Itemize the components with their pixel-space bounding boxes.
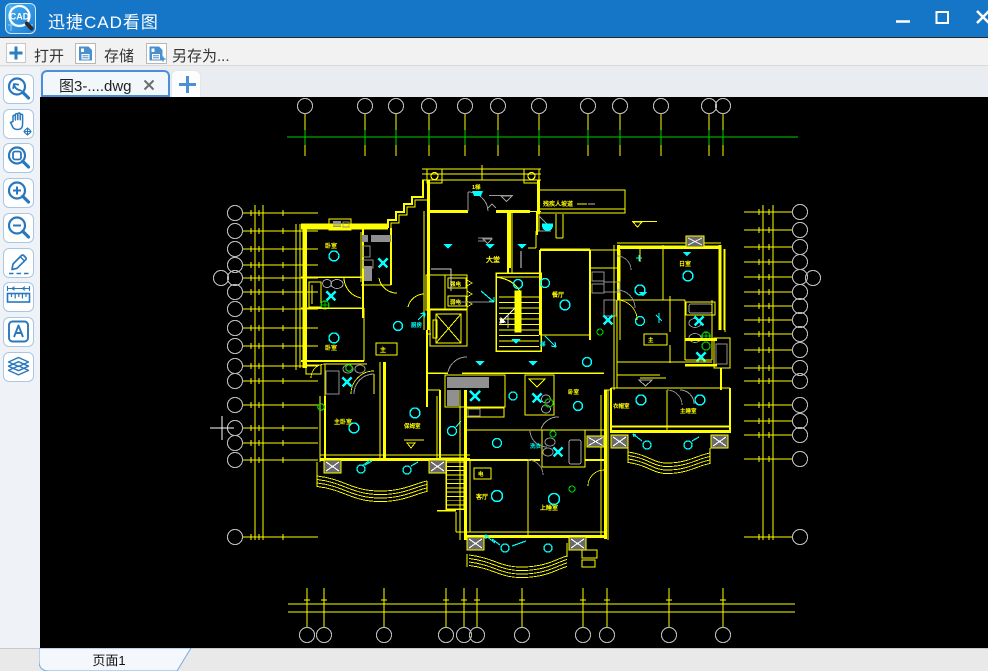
svg-text:餐厅: 餐厅	[551, 291, 564, 299]
svg-text:主睡室: 主睡室	[680, 407, 697, 415]
svg-text:主: 主	[648, 336, 654, 344]
svg-text:卧室: 卧室	[325, 242, 337, 250]
svg-text:日室: 日室	[679, 260, 691, 268]
svg-text:卧室: 卧室	[325, 344, 337, 352]
svg-text:1梯: 1梯	[472, 183, 481, 191]
svg-text:客厅: 客厅	[475, 493, 488, 501]
svg-text:主: 主	[380, 346, 386, 354]
svg-text:衣帽室: 衣帽室	[613, 402, 630, 410]
svg-text:卧室: 卧室	[568, 388, 580, 396]
svg-text:强电: 强电	[450, 280, 462, 288]
svg-text:上睡室: 上睡室	[540, 504, 558, 512]
svg-text:残疾人坡道: 残疾人坡道	[543, 200, 573, 208]
svg-text:CAD: CAD	[10, 12, 30, 22]
svg-text:厨房: 厨房	[411, 321, 423, 329]
svg-text:梯: 梯	[540, 340, 546, 348]
svg-text:页面1: 页面1	[92, 653, 125, 668]
svg-text:保姆室: 保姆室	[403, 422, 421, 430]
svg-text:电: 电	[478, 470, 484, 478]
svg-text:大堂: 大堂	[486, 255, 500, 264]
svg-text:主卧室: 主卧室	[334, 418, 352, 426]
svg-text:洗衣: 洗衣	[530, 442, 542, 450]
